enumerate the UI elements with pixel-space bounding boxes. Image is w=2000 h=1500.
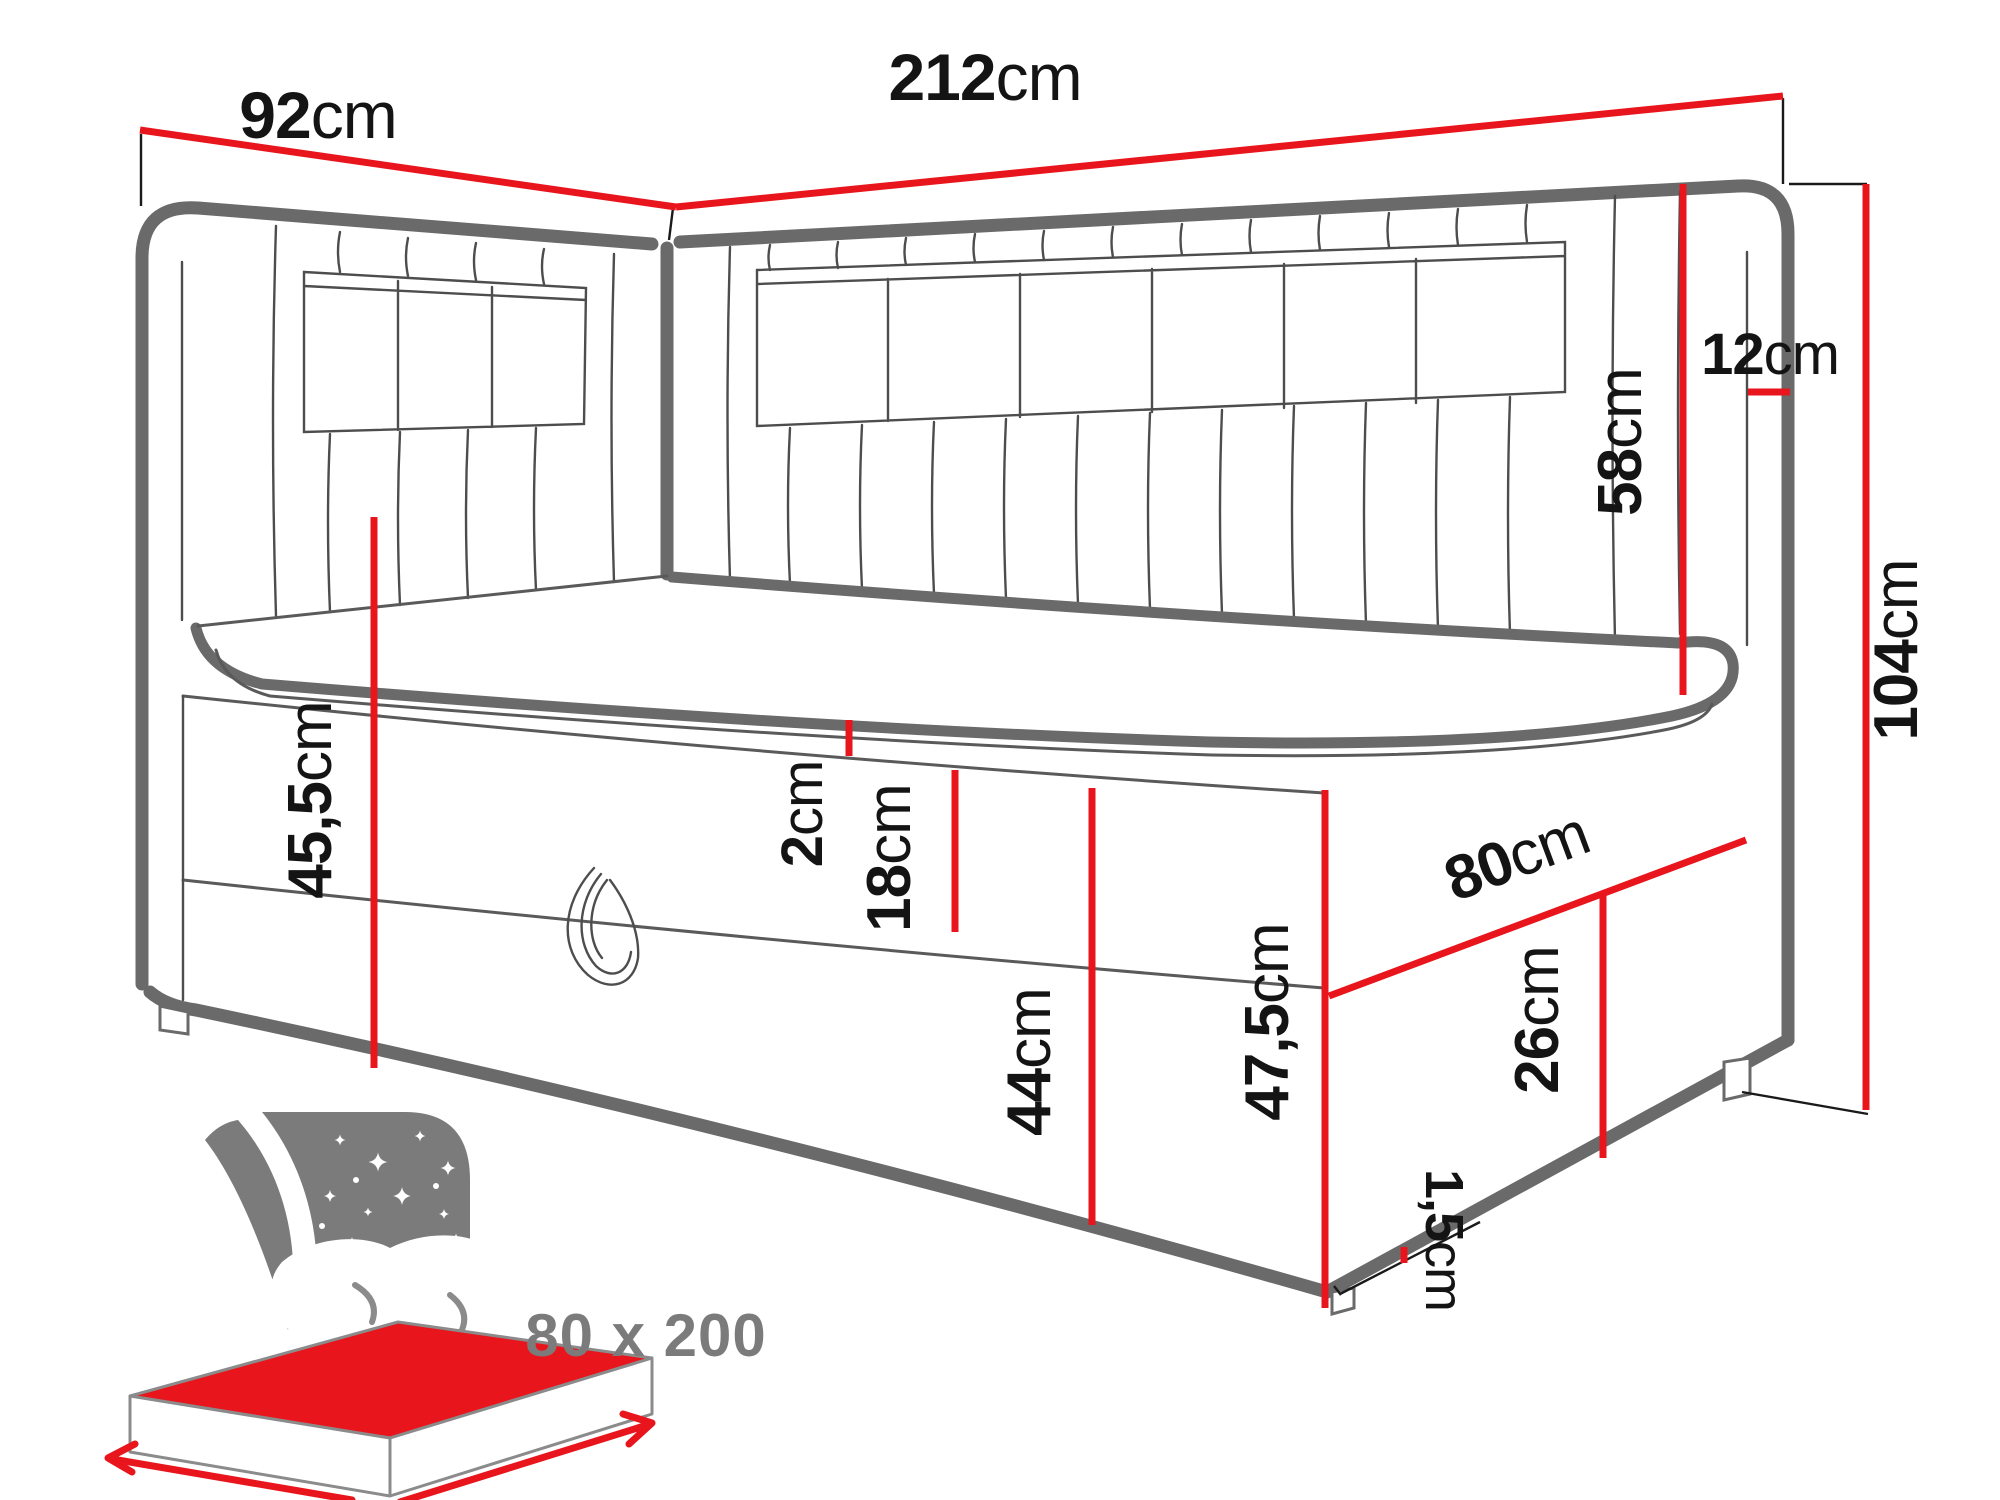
left-headboard: [142, 208, 667, 984]
dim-label-45-5: 45,5cm: [276, 701, 345, 898]
size-badge: 80 x 200: [108, 1112, 767, 1500]
left-headboard-tufting: [273, 226, 614, 616]
dim-label-1-5: 1,5cm: [1414, 1169, 1474, 1311]
dim-label-26: 26cm: [1503, 946, 1572, 1094]
dim-label-18: 18cm: [855, 784, 924, 932]
left-headboard-inset-panel: [304, 272, 586, 432]
dim-line-92: [140, 130, 676, 207]
right-headboard-inset-panel: [757, 242, 1565, 426]
dim-label-47-5: 47,5cm: [1233, 923, 1302, 1120]
dim-label-80: 80cm: [1436, 799, 1598, 915]
right-headboard-tufting: [728, 192, 1681, 640]
diagram-svg: 92cm 212cm 12cm 58cm 104cm 2cm 18cm 45,5…: [0, 0, 2000, 1500]
dim-label-104: 104cm: [1862, 559, 1931, 740]
mattress: [196, 576, 1733, 756]
dim-label-44: 44cm: [995, 988, 1064, 1136]
badge-size-label: 80 x 200: [525, 1302, 767, 1369]
dim-label-2: 2cm: [770, 761, 835, 868]
dim-label-58: 58cm: [1586, 368, 1655, 516]
mattress-headboard-junction: [198, 576, 667, 626]
dim-label-212: 212cm: [888, 40, 1081, 114]
drawer-bottom-seam: [183, 880, 1324, 988]
dim-label-92: 92cm: [239, 78, 396, 152]
bed-dimension-diagram: 92cm 212cm 12cm 58cm 104cm 2cm 18cm 45,5…: [0, 0, 2000, 1500]
dim-label-12: 12cm: [1701, 322, 1839, 387]
